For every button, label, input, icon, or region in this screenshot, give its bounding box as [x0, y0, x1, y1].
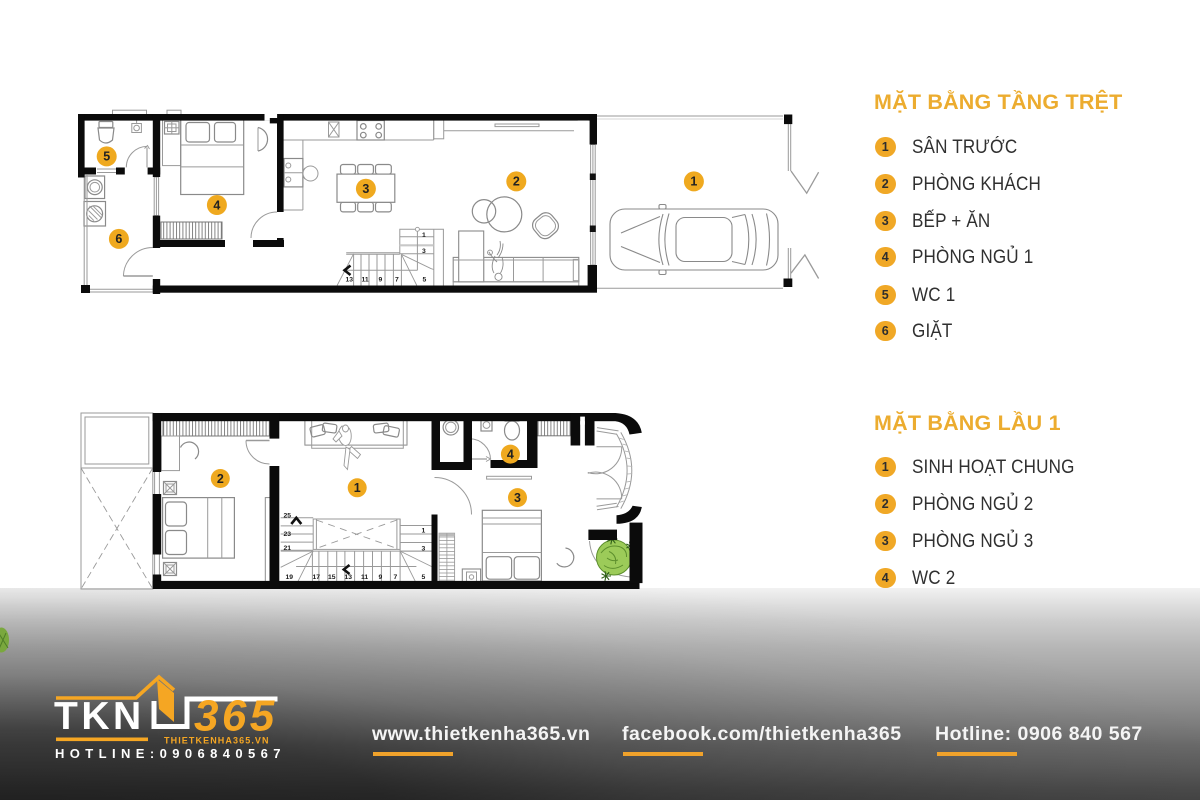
svg-text:1: 1	[690, 175, 697, 189]
svg-text:17: 17	[313, 574, 321, 581]
svg-text:19: 19	[286, 574, 294, 581]
svg-text:3: 3	[514, 491, 521, 505]
svg-text:7: 7	[395, 277, 399, 284]
svg-text:9: 9	[379, 277, 383, 284]
svg-text:11: 11	[362, 277, 369, 284]
svg-text:5: 5	[103, 150, 110, 164]
svg-text:23: 23	[284, 531, 292, 538]
svg-text:4: 4	[507, 447, 514, 461]
svg-text:1: 1	[354, 481, 361, 495]
svg-text:1: 1	[422, 528, 426, 535]
svg-text:5: 5	[422, 574, 426, 581]
svg-text:13: 13	[345, 574, 353, 581]
svg-text:15: 15	[328, 574, 336, 581]
svg-text:13: 13	[346, 277, 354, 284]
svg-text:3: 3	[422, 546, 426, 553]
svg-text:4: 4	[213, 198, 220, 212]
svg-text:9: 9	[379, 574, 383, 581]
svg-text:3: 3	[422, 248, 426, 255]
svg-text:25: 25	[284, 513, 292, 520]
svg-text:21: 21	[284, 545, 292, 552]
svg-text:11: 11	[361, 574, 368, 581]
svg-text:5: 5	[423, 277, 427, 284]
svg-text:7: 7	[394, 574, 398, 581]
svg-text:3: 3	[362, 182, 369, 196]
svg-text:2: 2	[513, 175, 520, 189]
svg-text:2: 2	[217, 472, 224, 486]
svg-text:1: 1	[422, 232, 426, 239]
svg-text:6: 6	[115, 232, 122, 246]
